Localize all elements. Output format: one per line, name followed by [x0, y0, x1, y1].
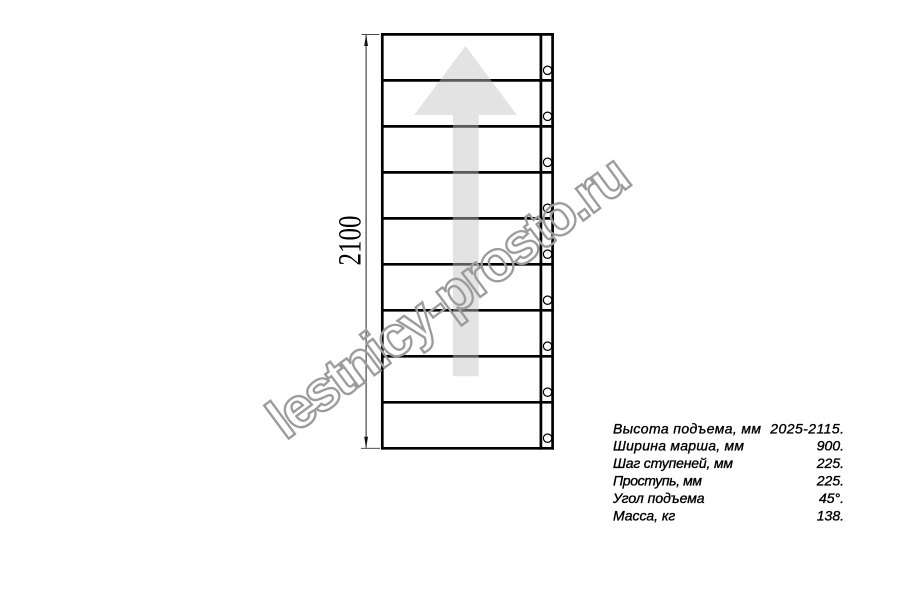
- svg-text:225.: 225.: [816, 455, 844, 471]
- svg-text:Проступь, мм: Проступь, мм: [613, 473, 702, 489]
- svg-text:Масса, кг: Масса, кг: [613, 507, 675, 523]
- svg-text:225.: 225.: [816, 473, 844, 489]
- svg-text:Высота подъема, мм: Высота подъема, мм: [613, 420, 761, 436]
- svg-text:2100: 2100: [333, 216, 369, 266]
- svg-text:138.: 138.: [817, 507, 844, 523]
- svg-text:900.: 900.: [817, 438, 844, 454]
- svg-text:2025-2115.: 2025-2115.: [769, 420, 844, 436]
- svg-text:45°.: 45°.: [819, 490, 844, 506]
- svg-text:Шаг ступеней, мм: Шаг ступеней, мм: [613, 455, 733, 471]
- svg-text:Ширина марша, мм: Ширина марша, мм: [613, 438, 744, 454]
- svg-text:Угол подъема: Угол подъема: [612, 490, 705, 506]
